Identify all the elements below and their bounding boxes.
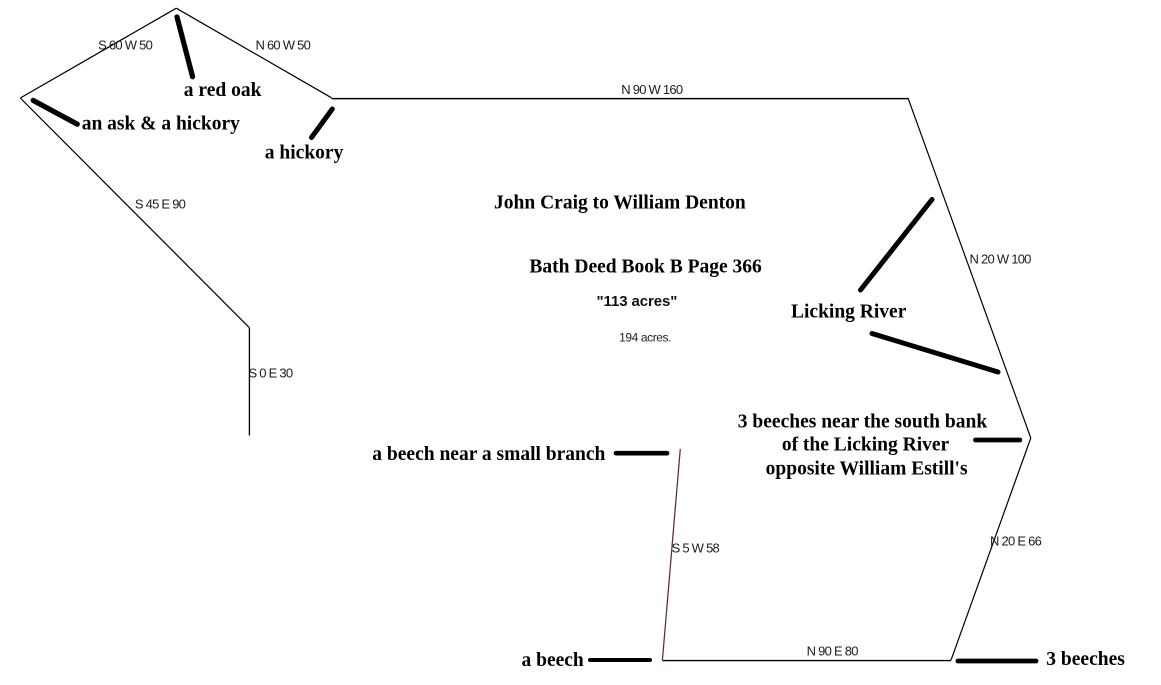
svg-text:a hickory: a hickory <box>265 142 344 163</box>
svg-text:N 60 W 50: N 60 W 50 <box>255 37 310 52</box>
svg-text:N 90 W 160: N 90 W 160 <box>621 82 683 97</box>
svg-text:S 60 W 50: S 60 W 50 <box>98 38 152 53</box>
svg-text:S 5 W 58: S 5 W 58 <box>672 541 720 556</box>
svg-text:N 90 E 80: N 90 E 80 <box>807 644 859 659</box>
svg-text:an ask & a hickory: an ask & a hickory <box>82 113 240 134</box>
svg-text:3 beeches near the south bank: 3 beeches near the south bank <box>738 412 988 433</box>
svg-text:N 20 W 100: N 20 W 100 <box>970 252 1032 267</box>
svg-text:"113 acres": "113 acres" <box>597 293 678 310</box>
svg-text:Bath Deed Book B Page 366: Bath Deed Book B Page 366 <box>529 256 762 277</box>
svg-text:a beech: a beech <box>522 650 584 671</box>
svg-text:194 acres.: 194 acres. <box>619 331 671 345</box>
svg-text:a beech near a small branch: a beech near a small branch <box>372 444 605 465</box>
svg-text:Licking River: Licking River <box>791 302 907 323</box>
svg-text:a red oak: a red oak <box>184 80 262 101</box>
svg-text:S 0 E 30: S 0 E 30 <box>248 366 292 381</box>
svg-text:opposite William Estill's: opposite William Estill's <box>766 459 968 480</box>
svg-text:John Craig to William Denton: John Craig to William Denton <box>494 193 746 214</box>
svg-text:3 beeches: 3 beeches <box>1046 649 1125 670</box>
svg-text:N 20 E 66: N 20 E 66 <box>990 534 1042 549</box>
svg-text:of the Licking River: of the Licking River <box>782 435 950 456</box>
svg-text:S 45 E 90: S 45 E 90 <box>135 197 186 212</box>
